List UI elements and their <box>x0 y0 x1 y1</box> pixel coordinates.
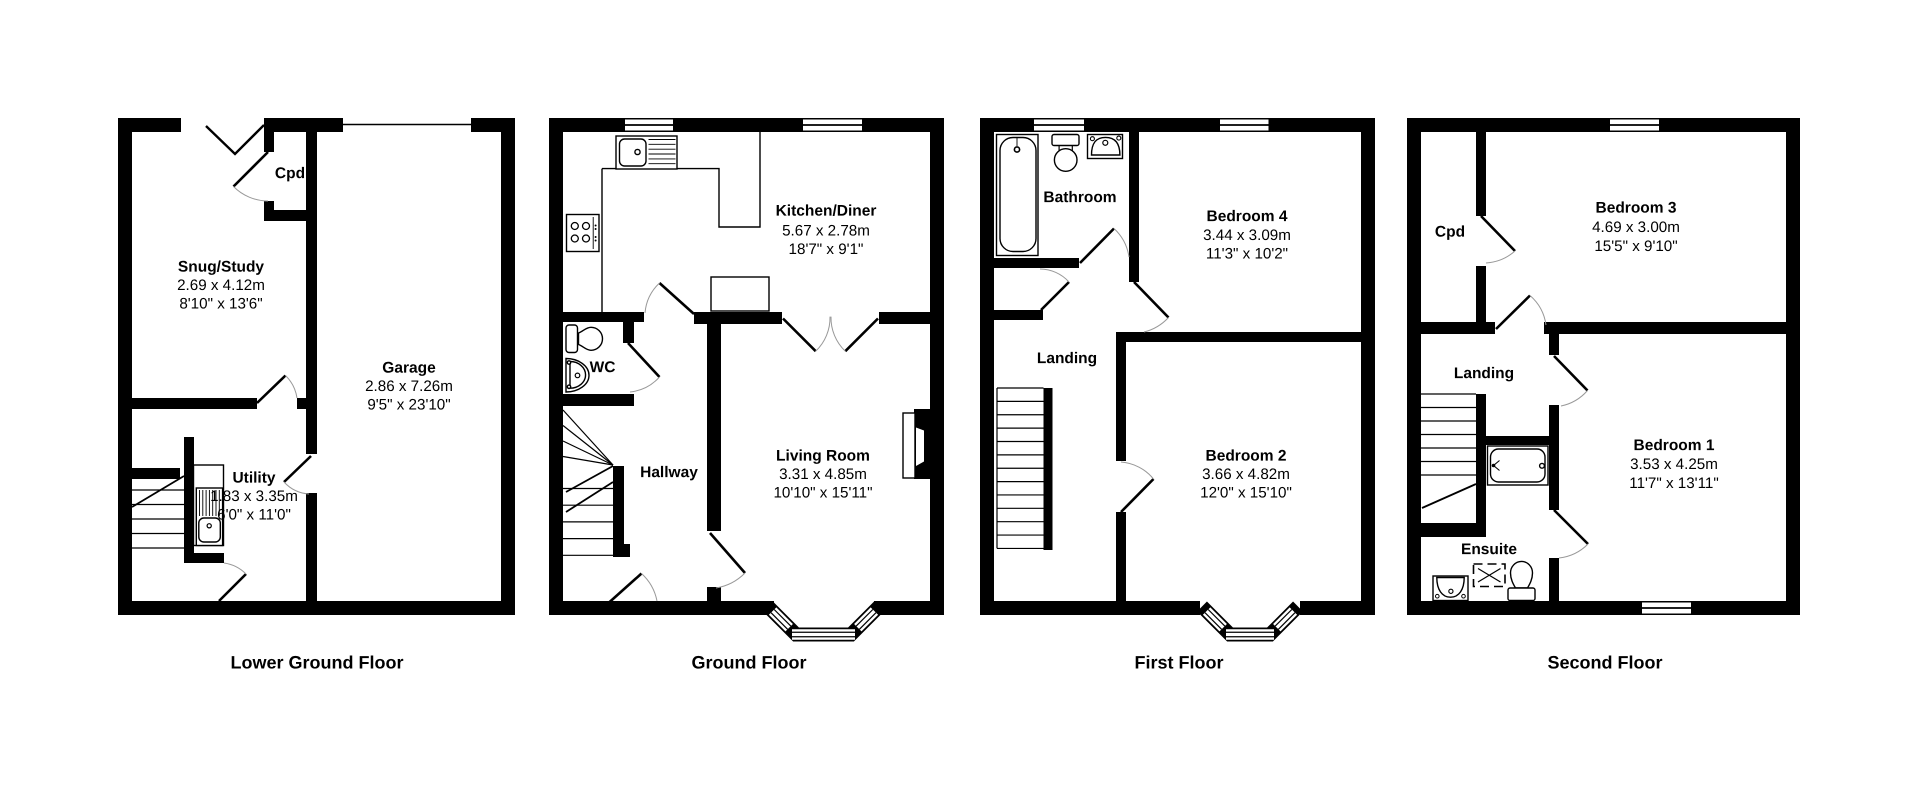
svg-text:Garage: Garage <box>382 360 436 377</box>
svg-text:2.69 x 4.12m: 2.69 x 4.12m <box>177 277 265 294</box>
svg-text:First Floor: First Floor <box>1134 652 1223 672</box>
svg-text:3.44 x 3.09m: 3.44 x 3.09m <box>1203 227 1291 244</box>
svg-text:Lower Ground Floor: Lower Ground Floor <box>230 652 403 672</box>
svg-text:3.53 x 4.25m: 3.53 x 4.25m <box>1630 456 1718 473</box>
svg-text:Bedroom 3: Bedroom 3 <box>1596 200 1677 217</box>
svg-text:Landing: Landing <box>1037 350 1097 367</box>
svg-text:Bedroom 2: Bedroom 2 <box>1206 448 1287 465</box>
svg-text:Second Floor: Second Floor <box>1547 652 1662 672</box>
svg-text:10'10" x 15'11": 10'10" x 15'11" <box>773 484 872 501</box>
svg-text:Cpd: Cpd <box>1435 224 1465 241</box>
svg-text:WC: WC <box>590 359 616 376</box>
svg-text:6'0" x 11'0": 6'0" x 11'0" <box>217 506 291 523</box>
svg-text:Utility: Utility <box>232 470 275 487</box>
svg-text:3.66 x 4.82m: 3.66 x 4.82m <box>1202 466 1290 483</box>
svg-text:9'5" x 23'10": 9'5" x 23'10" <box>367 396 450 413</box>
svg-text:Bathroom: Bathroom <box>1043 189 1116 206</box>
svg-text:Bedroom 4: Bedroom 4 <box>1207 208 1288 225</box>
svg-text:Bedroom 1: Bedroom 1 <box>1634 437 1715 454</box>
svg-text:Ground Floor: Ground Floor <box>692 652 807 672</box>
svg-text:11'3" x 10'2": 11'3" x 10'2" <box>1206 245 1288 262</box>
svg-text:Landing: Landing <box>1454 365 1514 382</box>
svg-text:3.31 x 4.85m: 3.31 x 4.85m <box>779 466 867 483</box>
svg-text:Hallway: Hallway <box>640 464 698 481</box>
svg-text:11'7" x 13'11": 11'7" x 13'11" <box>1629 475 1718 492</box>
svg-text:8'10" x 13'6": 8'10" x 13'6" <box>179 295 262 312</box>
svg-text:1.83 x 3.35m: 1.83 x 3.35m <box>210 488 298 505</box>
svg-text:Living Room: Living Room <box>776 448 870 465</box>
svg-text:2.86 x 7.26m: 2.86 x 7.26m <box>365 378 453 395</box>
svg-text:Kitchen/Diner: Kitchen/Diner <box>776 203 877 220</box>
svg-text:18'7" x 9'1": 18'7" x 9'1" <box>789 241 864 258</box>
svg-text:Cpd: Cpd <box>275 165 305 182</box>
svg-text:Ensuite: Ensuite <box>1461 541 1517 558</box>
svg-text:5.67 x 2.78m: 5.67 x 2.78m <box>782 222 870 239</box>
svg-text:Snug/Study: Snug/Study <box>178 259 264 276</box>
svg-text:15'5" x 9'10": 15'5" x 9'10" <box>1594 238 1677 255</box>
svg-text:12'0" x 15'10": 12'0" x 15'10" <box>1200 484 1292 501</box>
svg-text:4.69 x 3.00m: 4.69 x 3.00m <box>1592 219 1680 236</box>
